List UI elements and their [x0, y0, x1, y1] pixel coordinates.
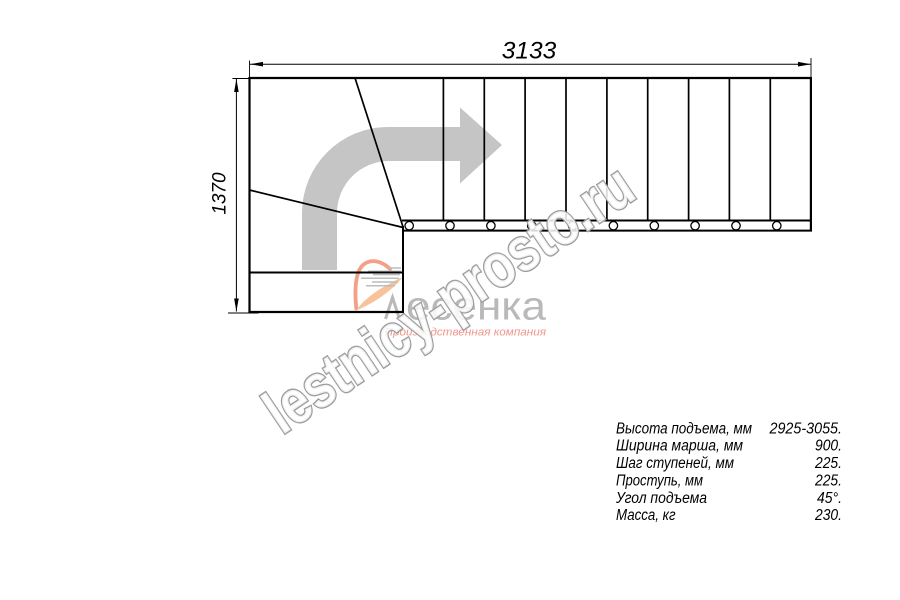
svg-text:225.: 225.	[814, 472, 842, 489]
svg-text:2925-3055.: 2925-3055.	[769, 420, 842, 437]
svg-text:Высота подъема, мм: Высота подъема, мм	[616, 420, 752, 437]
svg-text:Ширина марша, мм: Ширина марша, мм	[616, 438, 743, 455]
svg-text:45°.: 45°.	[817, 490, 842, 507]
svg-text:Угол подъема: Угол подъема	[615, 490, 707, 507]
svg-text:3133: 3133	[502, 38, 557, 65]
svg-text:1370: 1370	[210, 172, 231, 215]
svg-text:Масса, кг: Масса, кг	[616, 507, 676, 524]
svg-text:900.: 900.	[815, 438, 842, 455]
svg-text:Проступь, мм: Проступь, мм	[616, 472, 703, 489]
svg-text:225.: 225.	[814, 455, 842, 472]
svg-text:Шаг ступеней, мм: Шаг ступеней, мм	[616, 455, 734, 472]
svg-text:230.: 230.	[814, 507, 842, 524]
